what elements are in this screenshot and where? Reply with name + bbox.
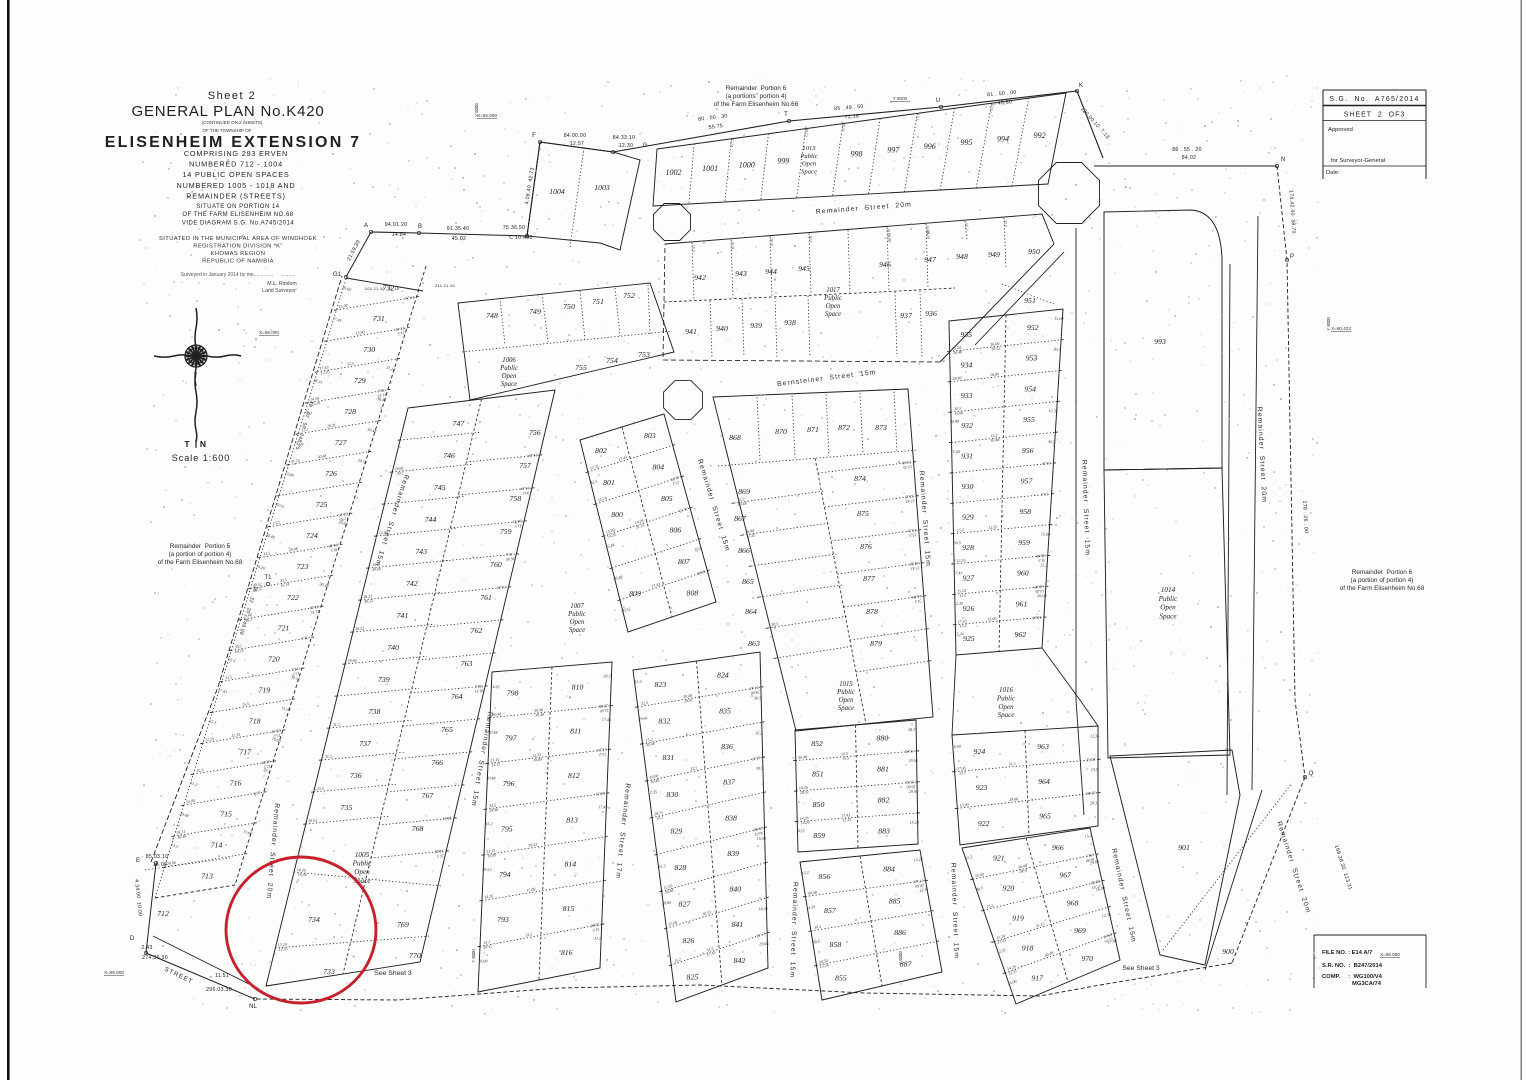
- svg-text:900: 900: [1222, 947, 1234, 956]
- svg-text:719: 719: [258, 686, 270, 695]
- svg-text:953: 953: [1026, 354, 1038, 363]
- svg-text:Public: Public: [499, 365, 518, 372]
- svg-text:X=65.000: X=65.000: [1380, 952, 1400, 957]
- svg-text:852: 852: [811, 739, 823, 748]
- svg-text:1003: 1003: [594, 183, 610, 192]
- svg-text:724: 724: [306, 531, 318, 540]
- svg-text:994: 994: [997, 135, 1009, 144]
- svg-text:FILE NO. : E14 A/7: FILE NO. : E14 A/7: [1322, 950, 1372, 956]
- svg-text:15.2: 15.2: [1040, 562, 1047, 567]
- svg-text:756: 756: [529, 428, 541, 437]
- svg-text:SHEET 2 OF3: SHEET 2 OF3: [1344, 112, 1406, 119]
- svg-text:998: 998: [851, 149, 863, 158]
- svg-text:D: D: [130, 936, 135, 942]
- svg-text:1007: 1007: [570, 603, 584, 610]
- svg-text:15.2: 15.2: [599, 752, 607, 758]
- svg-text:996: 996: [924, 142, 936, 151]
- svg-text:884: 884: [883, 865, 895, 874]
- svg-text:15.5: 15.5: [909, 533, 917, 539]
- svg-text:15.5: 15.5: [317, 785, 324, 791]
- svg-text:725: 725: [316, 500, 328, 509]
- svg-text:871: 871: [807, 425, 819, 434]
- svg-text:Approved: Approved: [1328, 127, 1353, 133]
- svg-text:813: 813: [566, 815, 578, 824]
- svg-text:842: 842: [734, 956, 746, 965]
- svg-text:926: 926: [963, 604, 975, 613]
- svg-text:967: 967: [1059, 871, 1072, 880]
- svg-text:30.52: 30.52: [355, 625, 364, 631]
- svg-text:964: 964: [1038, 777, 1050, 786]
- svg-text:992: 992: [1034, 131, 1046, 140]
- svg-text:15.5: 15.5: [1091, 767, 1098, 772]
- svg-text:1005: 1005: [355, 851, 370, 859]
- svg-text:31.5: 31.5: [515, 523, 522, 529]
- svg-text:713: 713: [201, 871, 213, 880]
- svg-text:15.00: 15.00: [954, 410, 963, 416]
- svg-text:Space: Space: [801, 168, 817, 175]
- svg-text:30.52: 30.52: [991, 345, 1000, 351]
- svg-text:879: 879: [870, 639, 882, 648]
- svg-text:816: 816: [561, 948, 573, 957]
- svg-text:15.00: 15.00: [600, 708, 609, 714]
- svg-text:12.35: 12.35: [1090, 734, 1099, 739]
- svg-text:Public: Public: [352, 860, 373, 868]
- svg-text:KHOMAS REGION: KHOMAS REGION: [211, 251, 266, 257]
- svg-text:32.5: 32.5: [1003, 220, 1008, 227]
- svg-text:735: 735: [341, 803, 353, 812]
- svg-text:30.5: 30.5: [754, 695, 761, 700]
- svg-text:N: N: [200, 439, 206, 449]
- svg-text:726: 726: [325, 469, 337, 478]
- svg-text:935: 935: [960, 330, 972, 339]
- svg-text:COMP. : WG100/V4: COMP. : WG100/V4: [1322, 974, 1383, 980]
- svg-text:958: 958: [1019, 507, 1031, 516]
- svg-text:Open: Open: [998, 703, 1014, 711]
- svg-text:30.52: 30.52: [308, 817, 317, 823]
- svg-text:942: 942: [694, 273, 706, 282]
- svg-text:1001: 1001: [702, 164, 718, 173]
- svg-text:30.5: 30.5: [771, 621, 779, 627]
- svg-text:14.84: 14.84: [392, 232, 406, 238]
- svg-text:14.26: 14.26: [1042, 461, 1051, 467]
- svg-text:X=60.422: X=60.422: [1331, 326, 1351, 331]
- svg-text:Open: Open: [826, 303, 841, 310]
- svg-text:T1: T1: [264, 575, 272, 581]
- svg-text:See Sheet 3: See Sheet 3: [1122, 965, 1160, 972]
- svg-text:31.5: 31.5: [959, 593, 966, 599]
- svg-text:951: 951: [1024, 296, 1036, 305]
- svg-text:748: 748: [486, 311, 498, 320]
- svg-text:714: 714: [211, 840, 223, 849]
- svg-text:15.00: 15.00: [1041, 531, 1051, 537]
- svg-text:30.5: 30.5: [756, 766, 763, 771]
- svg-text:17.43: 17.43: [602, 717, 611, 722]
- svg-text:712: 712: [157, 909, 169, 918]
- svg-text:Remainder Portion 5: Remainder Portion 5: [170, 543, 231, 550]
- svg-text:15.2: 15.2: [964, 223, 970, 231]
- svg-text:30.48: 30.48: [486, 775, 495, 780]
- svg-text:29.66: 29.66: [909, 758, 919, 763]
- svg-text:828: 828: [675, 863, 687, 872]
- svg-text:877: 877: [863, 574, 876, 583]
- svg-text:836: 836: [721, 742, 733, 751]
- svg-text:30.5: 30.5: [954, 540, 961, 545]
- svg-text:12.35: 12.35: [278, 946, 287, 952]
- svg-text:737: 737: [359, 739, 372, 748]
- svg-text:764: 764: [451, 692, 463, 701]
- svg-text:722: 722: [287, 593, 299, 602]
- svg-text:15.2: 15.2: [957, 527, 964, 533]
- svg-text:795: 795: [501, 824, 513, 833]
- svg-text:851: 851: [812, 770, 824, 779]
- svg-text:12.30: 12.30: [619, 143, 633, 149]
- svg-text:754: 754: [606, 356, 618, 365]
- svg-text:30.5: 30.5: [808, 235, 813, 242]
- svg-text:29.66: 29.66: [759, 941, 769, 946]
- svg-text:936: 936: [925, 309, 937, 318]
- svg-text:793: 793: [497, 915, 509, 924]
- svg-text:800: 800: [611, 510, 623, 519]
- svg-text:802: 802: [595, 446, 607, 455]
- svg-text:30.48: 30.48: [798, 754, 807, 760]
- svg-text:274.36.90: 274.36.90: [142, 955, 168, 961]
- svg-text:838: 838: [725, 813, 737, 822]
- svg-text:805: 805: [661, 494, 673, 503]
- svg-text:15.5: 15.5: [842, 756, 849, 762]
- svg-text:U: U: [936, 98, 940, 104]
- svg-text:15.24: 15.24: [528, 453, 537, 459]
- svg-text:MG3CA/74: MG3CA/74: [1352, 981, 1382, 987]
- svg-text:G1: G1: [333, 272, 342, 278]
- svg-text:960: 960: [1017, 569, 1029, 578]
- svg-text:84.33.10: 84.33.10: [613, 135, 636, 141]
- svg-text:993: 993: [1154, 337, 1166, 346]
- svg-text:885: 885: [889, 896, 901, 905]
- svg-text:762: 762: [471, 626, 483, 635]
- svg-text:16.00: 16.00: [757, 836, 766, 841]
- svg-text:NL: NL: [249, 1004, 257, 1010]
- svg-text:Remainder Portion 6: Remainder Portion 6: [726, 85, 787, 92]
- svg-text:874: 874: [854, 474, 866, 483]
- svg-text:Scale 1:600: Scale 1:600: [172, 453, 231, 463]
- svg-text:870: 870: [775, 427, 787, 436]
- svg-text:X=65.000: X=65.000: [477, 113, 497, 118]
- svg-text:858: 858: [830, 940, 842, 949]
- svg-text:1006: 1006: [502, 357, 516, 364]
- svg-text:2.43: 2.43: [141, 945, 152, 951]
- svg-text:211.11.10: 211.11.10: [435, 283, 455, 288]
- svg-text:15.00: 15.00: [905, 749, 914, 755]
- svg-text:NUMBERED 712 - 1004: NUMBERED 712 - 1004: [189, 160, 283, 169]
- svg-text:Land Surveyor: Land Surveyor: [262, 288, 296, 294]
- svg-text:75.36.50: 75.36.50: [503, 225, 526, 231]
- svg-text:808: 808: [687, 588, 699, 597]
- svg-text:931: 931: [961, 452, 973, 461]
- svg-text:M.L. Rindom: M.L. Rindom: [267, 281, 296, 287]
- svg-text:1013: 1013: [802, 145, 816, 152]
- svg-text:Public: Public: [1158, 595, 1179, 603]
- svg-text:794: 794: [499, 870, 511, 879]
- svg-text:831: 831: [663, 753, 675, 762]
- svg-text:728: 728: [344, 407, 356, 416]
- svg-text:742: 742: [406, 579, 418, 588]
- svg-text:(a portion of portion 4): (a portion of portion 4): [169, 551, 232, 558]
- svg-text:859: 859: [813, 831, 825, 840]
- svg-text:945: 945: [798, 264, 810, 273]
- svg-text:14.26: 14.26: [758, 906, 768, 911]
- svg-text:REPUBLIC OF NAMIBIA: REPUBLIC OF NAMIBIA: [202, 259, 274, 265]
- svg-text:28.31: 28.31: [475, 688, 484, 694]
- svg-text:863: 863: [748, 639, 760, 648]
- svg-text:16.00: 16.00: [506, 556, 515, 562]
- svg-text:920: 920: [1003, 884, 1015, 893]
- svg-text:30.48: 30.48: [953, 349, 962, 355]
- svg-text:839: 839: [727, 849, 739, 858]
- svg-text:841: 841: [731, 920, 743, 929]
- svg-text:869: 869: [738, 487, 750, 496]
- svg-text:925: 925: [963, 634, 975, 643]
- svg-text:30.5: 30.5: [522, 490, 529, 496]
- svg-text:801: 801: [603, 478, 615, 487]
- svg-text:84,02: 84,02: [1182, 155, 1196, 161]
- svg-text:17.43: 17.43: [906, 498, 916, 504]
- svg-text:30.52: 30.52: [1086, 757, 1095, 763]
- svg-text:966: 966: [1052, 843, 1064, 852]
- svg-text:829: 829: [671, 826, 683, 835]
- svg-text:857: 857: [824, 906, 837, 915]
- svg-text:14.26: 14.26: [800, 820, 809, 826]
- svg-text:1016: 1016: [999, 686, 1014, 694]
- svg-text:850: 850: [813, 800, 825, 809]
- svg-text:815: 815: [563, 904, 575, 913]
- svg-text:868: 868: [729, 433, 741, 442]
- svg-text:VIDE DIAGRAM S.G. No.A745/2014: VIDE DIAGRAM S.G. No.A745/2014: [182, 220, 295, 226]
- svg-text:See Sheet 3: See Sheet 3: [374, 970, 412, 977]
- svg-text:1004: 1004: [549, 187, 565, 196]
- svg-text:962: 962: [1014, 630, 1026, 639]
- svg-text:718: 718: [249, 717, 261, 726]
- svg-text:766: 766: [431, 758, 443, 767]
- svg-text:757: 757: [519, 461, 532, 470]
- svg-text:94.01.20: 94.01.20: [385, 222, 408, 228]
- svg-text:Open: Open: [570, 619, 585, 626]
- svg-text:15.00: 15.00: [951, 449, 960, 454]
- svg-text:999: 999: [777, 157, 789, 166]
- svg-text:12.35: 12.35: [954, 601, 963, 606]
- svg-text:940: 940: [716, 324, 728, 333]
- svg-text:28.31: 28.31: [1090, 800, 1099, 805]
- svg-text:Space: Space: [838, 705, 854, 712]
- svg-text:P: P: [1290, 254, 1294, 260]
- svg-text:729: 729: [354, 376, 366, 385]
- svg-text:880: 880: [877, 734, 889, 743]
- svg-text:12.35: 12.35: [903, 464, 913, 470]
- svg-text:Q: Q: [1309, 771, 1314, 777]
- svg-text:887: 887: [900, 960, 913, 969]
- svg-text:OF THE TOWNSHIP OF: OF THE TOWNSHIP OF: [202, 128, 251, 133]
- svg-text:Open: Open: [354, 868, 370, 876]
- svg-text:12.35: 12.35: [1048, 408, 1058, 414]
- svg-text:14 PUBLIC OPEN SPACES: 14 PUBLIC OPEN SPACES: [182, 170, 289, 179]
- svg-text:Open: Open: [839, 697, 854, 704]
- svg-text:28.31: 28.31: [730, 241, 735, 250]
- svg-text:796: 796: [503, 779, 515, 788]
- svg-text:28.31: 28.31: [603, 673, 612, 678]
- svg-text:804: 804: [652, 462, 664, 471]
- svg-text:Space: Space: [569, 627, 585, 634]
- svg-text:886: 886: [894, 928, 906, 937]
- svg-text:31.5: 31.5: [325, 753, 332, 759]
- svg-text:736: 736: [350, 771, 362, 780]
- svg-text:15.00: 15.00: [1054, 316, 1064, 322]
- svg-text:768: 768: [412, 824, 424, 833]
- svg-text:K: K: [1079, 83, 1083, 89]
- svg-text:30.5: 30.5: [1048, 439, 1055, 444]
- svg-text:Public: Public: [799, 153, 817, 160]
- svg-text:Surveyed in January 2014 by me: Surveyed in January 2014 by me..........…: [181, 272, 296, 278]
- svg-text:31.5: 31.5: [333, 721, 340, 727]
- svg-text:965: 965: [1039, 811, 1051, 820]
- svg-text:91.35.40: 91.35.40: [447, 226, 470, 232]
- svg-text:Remainder Portion 6: Remainder Portion 6: [1352, 569, 1413, 576]
- svg-text:28.31: 28.31: [769, 237, 774, 246]
- svg-text:751: 751: [592, 297, 604, 306]
- svg-text:Space: Space: [825, 311, 841, 318]
- svg-text:15.00: 15.00: [959, 802, 968, 808]
- svg-text:Space: Space: [501, 381, 517, 388]
- svg-text:30.48: 30.48: [950, 419, 959, 424]
- svg-text:927: 927: [962, 573, 975, 582]
- svg-text:15.00: 15.00: [987, 616, 996, 622]
- svg-text:946: 946: [879, 260, 891, 269]
- svg-text:15.24: 15.24: [926, 230, 931, 239]
- svg-text:N: N: [1281, 157, 1285, 163]
- svg-text:30.52: 30.52: [364, 598, 373, 604]
- svg-text:14.26: 14.26: [490, 684, 500, 689]
- svg-text:968: 968: [1067, 899, 1079, 908]
- svg-text:28.31: 28.31: [442, 816, 451, 822]
- svg-text:767: 767: [422, 791, 435, 800]
- svg-text:28.31: 28.31: [800, 789, 809, 795]
- svg-text:16.00: 16.00: [478, 958, 487, 963]
- svg-text:of the Farm Elisenheim No.68: of the Farm Elisenheim No.68: [1340, 585, 1425, 592]
- svg-text:716: 716: [230, 779, 242, 788]
- svg-text:969: 969: [1074, 926, 1086, 935]
- svg-text:921: 921: [993, 854, 1005, 863]
- svg-text:Open: Open: [802, 161, 817, 168]
- svg-text:T: T: [184, 439, 190, 449]
- svg-text:922: 922: [978, 819, 990, 828]
- svg-text:30.48: 30.48: [990, 437, 999, 443]
- svg-text:OF THE FARM ELISENHEIM NO.68: OF THE FARM ELISENHEIM NO.68: [182, 212, 293, 218]
- svg-text:15.24: 15.24: [729, 138, 735, 147]
- svg-text:1015: 1015: [839, 681, 853, 688]
- svg-text:952: 952: [1027, 323, 1039, 332]
- svg-text:797: 797: [505, 734, 518, 743]
- svg-text:1000: 1000: [739, 160, 755, 169]
- svg-text:763: 763: [461, 659, 473, 668]
- svg-text:770: 770: [409, 951, 421, 960]
- svg-text:Public: Public: [996, 694, 1016, 702]
- svg-text:15.2: 15.2: [755, 730, 762, 735]
- svg-text:30.52: 30.52: [482, 867, 491, 872]
- svg-text:835: 835: [719, 706, 731, 715]
- svg-text:31.5: 31.5: [959, 770, 966, 776]
- svg-text:760: 760: [490, 560, 502, 569]
- svg-text:GENERAL PLAN No.K420: GENERAL PLAN No.K420: [131, 103, 324, 120]
- svg-text:750: 750: [563, 302, 575, 311]
- svg-text:878: 878: [866, 607, 878, 616]
- svg-text:759: 759: [500, 527, 512, 536]
- svg-text:823: 823: [655, 680, 667, 689]
- svg-text:B: B: [418, 224, 422, 230]
- svg-text:Y 8000: Y 8000: [1326, 317, 1331, 331]
- svg-text:Open: Open: [1160, 604, 1176, 612]
- svg-text:16.00: 16.00: [297, 871, 306, 877]
- svg-text:NUMBERED 1005 - 1018 AND: NUMBERED 1005 - 1018 AND: [177, 181, 296, 190]
- svg-text:X=65.000: X=65.000: [259, 330, 279, 335]
- svg-text:Space: Space: [1159, 612, 1177, 620]
- svg-text:1017: 1017: [826, 287, 840, 294]
- svg-text:Sheet 2: Sheet 2: [208, 90, 256, 102]
- svg-text:956: 956: [1022, 446, 1034, 455]
- svg-text:SITUATE ON PORTION 14: SITUATE ON PORTION 14: [196, 204, 279, 210]
- svg-text:15.5: 15.5: [437, 853, 444, 859]
- svg-text:15.2: 15.2: [658, 863, 666, 869]
- svg-text:875: 875: [857, 509, 869, 518]
- svg-text:1002: 1002: [666, 168, 682, 177]
- svg-text:997: 997: [887, 146, 900, 155]
- svg-text:866: 866: [738, 546, 750, 555]
- svg-text:for Surveyor-General: for Surveyor-General: [1331, 158, 1385, 164]
- svg-text:761: 761: [480, 593, 492, 602]
- svg-text:16.00: 16.00: [533, 756, 543, 762]
- svg-text:731: 731: [373, 314, 385, 323]
- svg-text:749: 749: [529, 307, 541, 316]
- svg-text:31.5: 31.5: [594, 935, 601, 940]
- svg-text:824: 824: [717, 671, 729, 680]
- svg-text:of the Farm Elisenheim No.66: of the Farm Elisenheim No.66: [714, 101, 799, 108]
- svg-text:734: 734: [308, 915, 320, 924]
- svg-text:807: 807: [678, 557, 691, 566]
- svg-text:Y 8000: Y 8000: [474, 103, 479, 117]
- svg-text:918: 918: [1022, 944, 1034, 953]
- svg-text:29.66: 29.66: [909, 789, 919, 794]
- svg-text:45.02: 45.02: [452, 236, 466, 242]
- svg-text:15.2: 15.2: [485, 821, 492, 826]
- svg-text:955: 955: [1023, 415, 1035, 424]
- svg-text:743: 743: [415, 547, 427, 556]
- svg-text:809: 809: [629, 589, 641, 598]
- svg-text:85.03.10: 85.03.10: [146, 854, 169, 860]
- svg-text:941: 941: [685, 327, 697, 336]
- svg-text:E: E: [136, 858, 140, 864]
- svg-text:747: 747: [453, 419, 466, 428]
- svg-text:970: 970: [1081, 954, 1093, 963]
- svg-text:86 . 55 . 20: 86 . 55 . 20: [1172, 147, 1202, 153]
- svg-text:(a portions” portion 4): (a portions” portion 4): [725, 93, 786, 100]
- svg-text:15.00: 15.00: [1086, 790, 1095, 796]
- svg-text:S.R. NO. : B247/2014: S.R. NO. : B247/2014: [1322, 963, 1383, 969]
- svg-text:Public: Public: [567, 611, 586, 618]
- svg-text:949: 949: [988, 250, 1000, 259]
- svg-text:16.00: 16.00: [1032, 615, 1041, 621]
- svg-text:938: 938: [784, 318, 796, 327]
- svg-text:746: 746: [443, 451, 455, 460]
- svg-text:947: 947: [924, 255, 937, 264]
- svg-text:840: 840: [729, 885, 741, 894]
- svg-text:Public: Public: [836, 689, 855, 696]
